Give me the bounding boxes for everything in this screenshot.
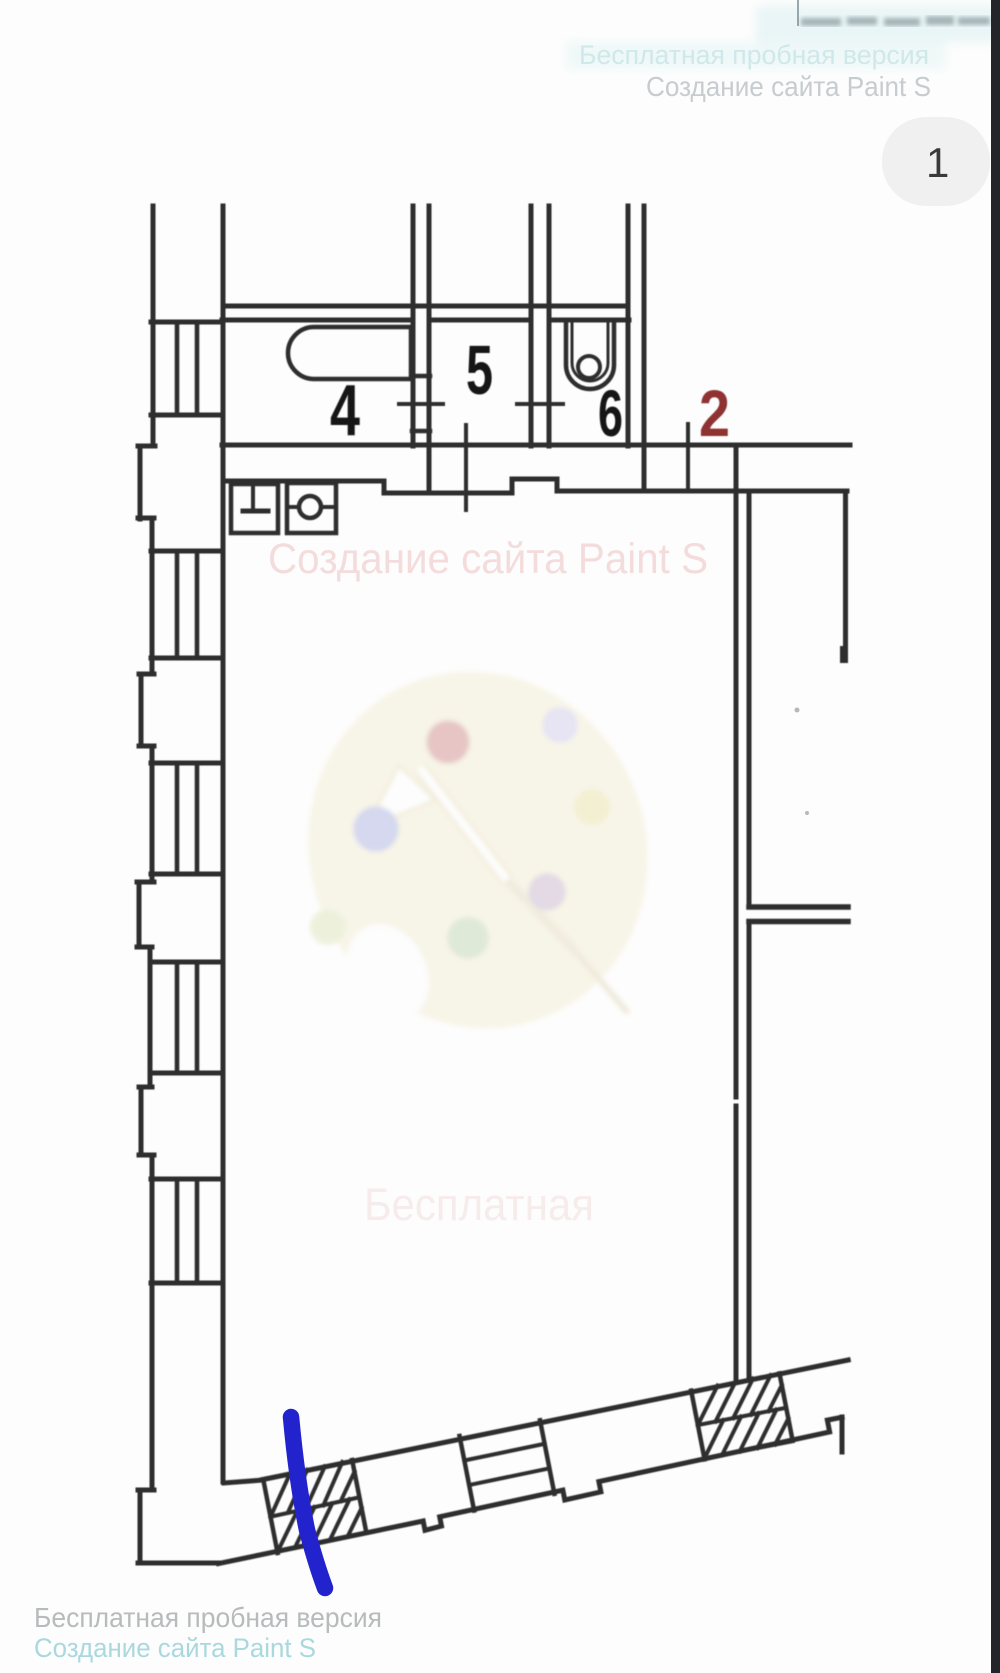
svg-text:Бесплатная пробная версия: Бесплатная пробная версия <box>579 40 929 70</box>
svg-text:Создание сайта Paint S: Создание сайта Paint S <box>646 71 931 102</box>
svg-text:4: 4 <box>330 371 360 451</box>
svg-text:6: 6 <box>598 376 623 450</box>
svg-text:1: 1 <box>926 139 949 186</box>
svg-text:Создание сайта Paint S: Создание сайта Paint S <box>268 535 708 583</box>
svg-text:Бесплатная пробная версия: Бесплатная пробная версия <box>34 1602 382 1633</box>
svg-text:Создание сайта Paint S: Создание сайта Paint S <box>34 1633 316 1663</box>
svg-text:5: 5 <box>466 331 493 409</box>
svg-text:Бесплатная: Бесплатная <box>364 1179 594 1230</box>
svg-text:2: 2 <box>699 376 730 450</box>
